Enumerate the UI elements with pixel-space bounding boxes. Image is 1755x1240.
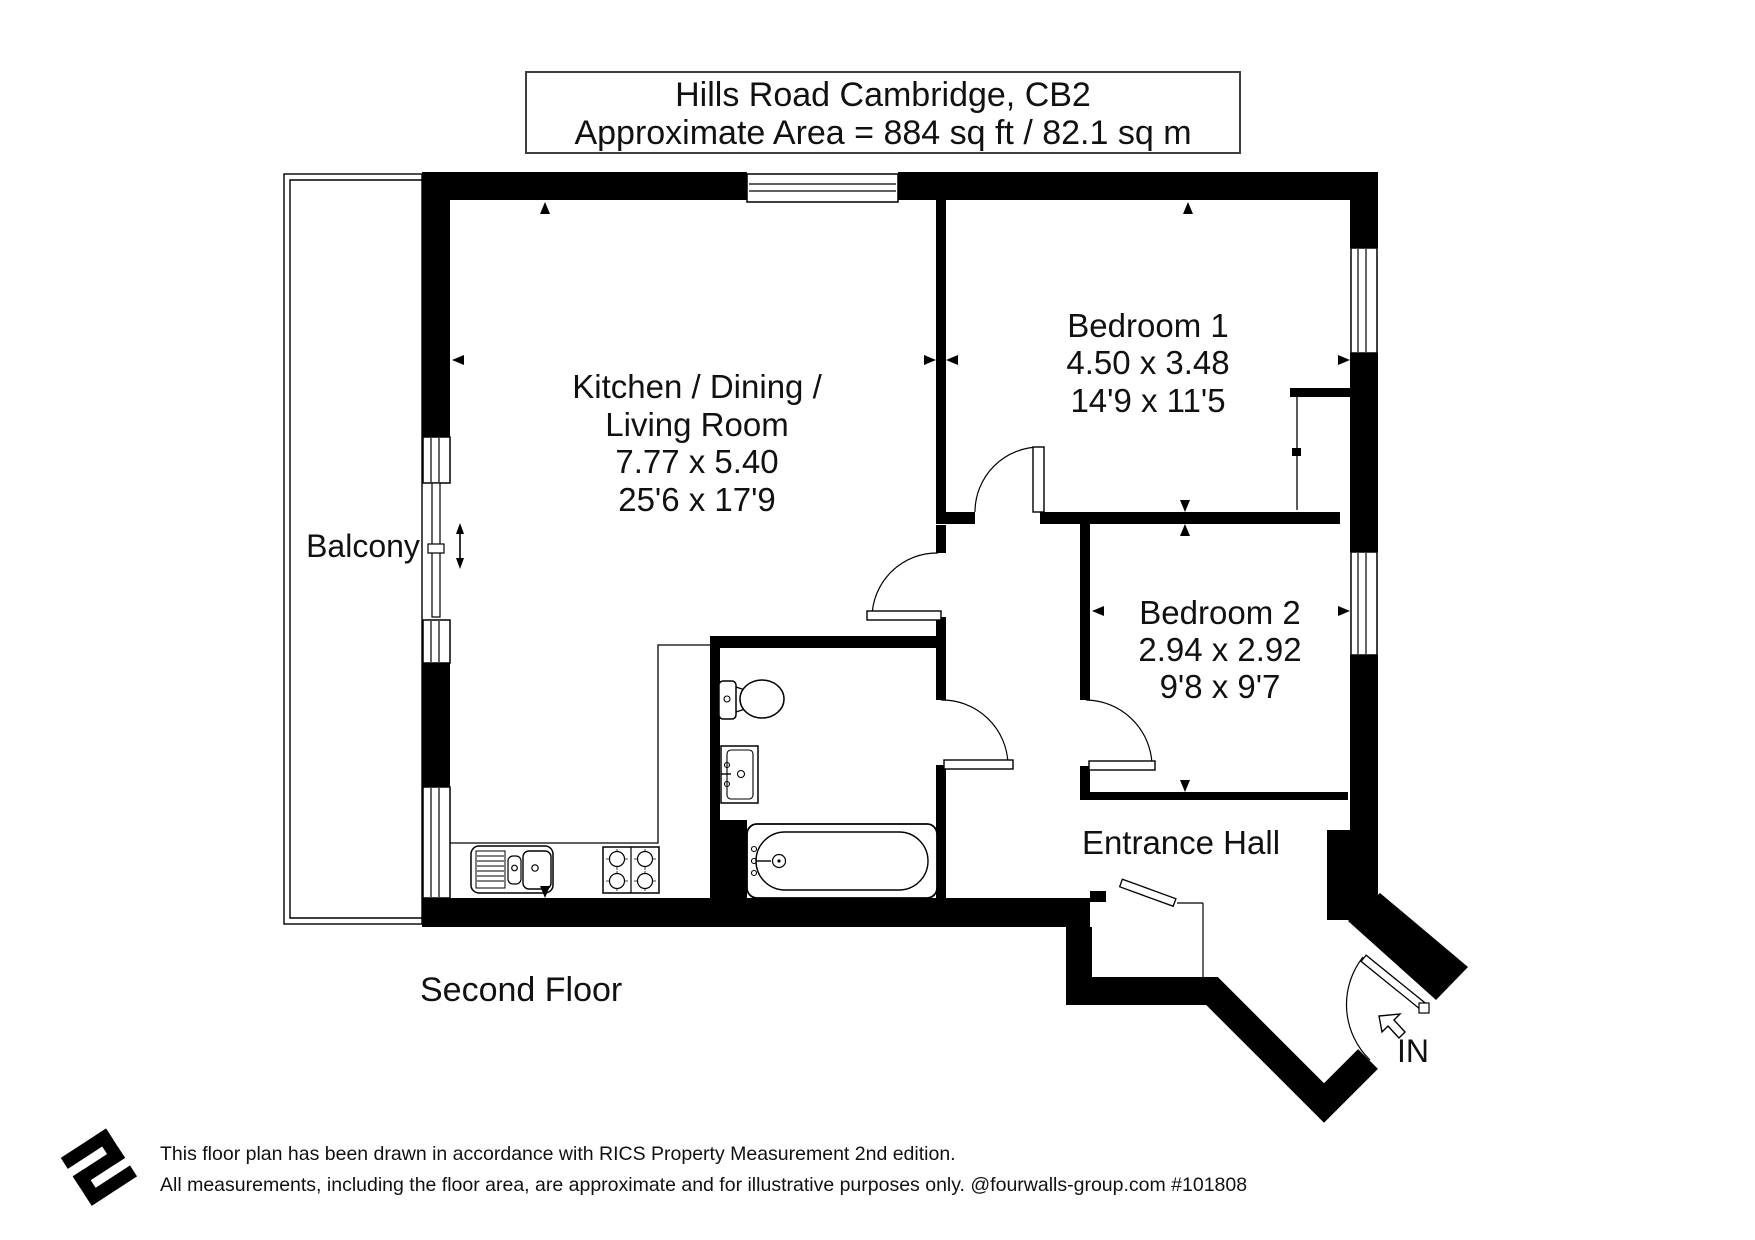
title-area: Approximate Area = 884 sq ft / 82.1 sq m bbox=[574, 114, 1191, 152]
wall-segment bbox=[710, 820, 747, 898]
sliding-balcony-door bbox=[428, 483, 444, 617]
hob-burner bbox=[638, 852, 653, 867]
window-frame bbox=[747, 174, 898, 202]
measure-arrow-right bbox=[1338, 606, 1350, 616]
bedroom2-dims-imperial: 9'8 x 9'7 bbox=[1160, 668, 1281, 705]
windows bbox=[423, 174, 1377, 898]
measure-arrow-down bbox=[1180, 780, 1190, 792]
living-room-label-line1: Kitchen / Dining / bbox=[572, 368, 822, 405]
floor-plan-page: Hills Road Cambridge, CB2 Approximate Ar… bbox=[0, 0, 1755, 1240]
title-address: Hills Road Cambridge, CB2 bbox=[675, 76, 1091, 114]
wall-segment bbox=[1350, 200, 1378, 248]
wall-segment-closet bbox=[1290, 388, 1352, 397]
measure-arrow-right bbox=[1338, 355, 1350, 365]
door-leaf bbox=[867, 611, 941, 620]
footer-disclaimer-line2: All measurements, including the floor ar… bbox=[160, 1174, 1247, 1196]
bedroom2-label: Bedroom 2 bbox=[1139, 594, 1300, 631]
door-bedroom2 bbox=[1086, 700, 1155, 770]
sliding-direction-arrow bbox=[456, 523, 464, 569]
toilet bbox=[719, 680, 784, 719]
wall-segment bbox=[422, 172, 747, 200]
door-swing-arc bbox=[975, 447, 1040, 512]
door-leaf bbox=[1033, 447, 1044, 512]
window-left-1 bbox=[423, 437, 450, 483]
door-cupboard bbox=[1120, 879, 1203, 978]
door-bathroom bbox=[941, 700, 1013, 769]
door-swing-arc bbox=[1347, 957, 1370, 1060]
footer-disclaimer-line1: This floor plan has been drawn in accord… bbox=[160, 1143, 956, 1165]
hob-burner bbox=[610, 874, 625, 889]
wall-segment-bathroom-top bbox=[710, 636, 938, 648]
title-box: Hills Road Cambridge, CB2 Approximate Ar… bbox=[526, 72, 1240, 153]
wall-segment bbox=[1082, 792, 1348, 800]
sink-bowl-small bbox=[508, 856, 521, 884]
window-frame bbox=[1351, 248, 1377, 353]
wall-segment bbox=[936, 525, 946, 553]
balcony-label: Balcony bbox=[306, 528, 420, 564]
sink-drainer bbox=[476, 851, 505, 888]
measure-arrow-left bbox=[946, 355, 958, 365]
bathtub bbox=[747, 824, 937, 898]
wall-segment bbox=[936, 617, 946, 700]
wall-segment bbox=[936, 512, 975, 524]
door-bedroom1 bbox=[975, 447, 1044, 512]
wall-segment-central bbox=[936, 200, 946, 512]
living-room-dims-metric: 7.77 x 5.40 bbox=[615, 443, 778, 480]
measure-arrow-up bbox=[1180, 524, 1190, 536]
sliding-door-panel bbox=[432, 550, 440, 617]
floor-name-label: Second Floor bbox=[420, 971, 622, 1009]
measure-arrow-up bbox=[540, 202, 550, 214]
sliding-door-coupler bbox=[428, 544, 444, 553]
arrow-head-up bbox=[456, 523, 464, 534]
bedroom1-dims-metric: 4.50 x 3.48 bbox=[1066, 344, 1229, 381]
window-frame bbox=[423, 437, 450, 483]
bedroom2-dims-metric: 2.94 x 2.92 bbox=[1138, 631, 1301, 668]
wall-segment-closet-tick bbox=[1292, 448, 1301, 456]
hob-burner bbox=[610, 852, 625, 867]
bath-inner bbox=[756, 832, 928, 890]
entrance-hall-label: Entrance Hall bbox=[1082, 824, 1280, 861]
door-swing-arc bbox=[1086, 700, 1152, 764]
hob-burner bbox=[638, 874, 653, 889]
doors bbox=[867, 447, 1429, 1060]
measure-arrow-up bbox=[1183, 202, 1193, 214]
bath-plug-dot bbox=[777, 859, 780, 862]
door-living-room bbox=[867, 553, 941, 620]
bedroom1-label: Bedroom 1 bbox=[1067, 307, 1228, 344]
wash-basin bbox=[721, 746, 758, 803]
living-room-dims-imperial: 25'6 x 17'9 bbox=[618, 481, 776, 518]
kitchen-sink bbox=[471, 846, 553, 893]
measure-arrow-left bbox=[452, 355, 464, 365]
door-hinge bbox=[1419, 1003, 1429, 1013]
wall-segment bbox=[422, 898, 1090, 927]
fourwalls-logo bbox=[61, 1129, 137, 1206]
window-bedroom2 bbox=[1351, 552, 1377, 655]
wall-segment-cupboard-jamb bbox=[1090, 891, 1106, 902]
measure-arrow-left bbox=[1092, 606, 1104, 616]
kitchen-hob bbox=[603, 847, 659, 893]
window-bedroom1 bbox=[1351, 248, 1377, 353]
window-left-2 bbox=[423, 620, 450, 663]
window-left-3 bbox=[423, 787, 450, 898]
kitchen-fixtures bbox=[450, 645, 710, 893]
living-room-label-line2: Living Room bbox=[605, 406, 788, 443]
sliding-door-panel bbox=[432, 483, 440, 546]
wall-segment bbox=[898, 172, 1378, 200]
wall-segment bbox=[422, 663, 450, 787]
window-frame bbox=[423, 620, 450, 663]
wall-segment-bathroom-left bbox=[710, 648, 720, 820]
window-top bbox=[747, 174, 898, 202]
wall-segment-bedroom-divider bbox=[1040, 512, 1340, 524]
wall-segment bbox=[1080, 523, 1090, 700]
wall-segment bbox=[1350, 353, 1378, 552]
entrance-in-label: IN bbox=[1397, 1033, 1429, 1069]
wall-segment-entry-diagonal-upper bbox=[1348, 893, 1468, 1000]
measure-arrow-right bbox=[924, 355, 936, 365]
wall-segment-entry-diagonal-lower bbox=[1066, 991, 1368, 1103]
bedroom1-dims-imperial: 14'9 x 11'5 bbox=[1070, 382, 1225, 419]
wall-segment bbox=[1066, 927, 1092, 979]
window-frame bbox=[423, 787, 450, 898]
toilet-cistern bbox=[719, 681, 736, 719]
kitchen-counter-line bbox=[450, 645, 710, 843]
wall-segment bbox=[422, 200, 450, 437]
measure-arrow-down bbox=[1180, 500, 1190, 512]
toilet-bowl bbox=[740, 680, 784, 718]
arrow-head-down bbox=[456, 558, 464, 569]
door-swing-arc bbox=[872, 553, 938, 617]
walls bbox=[422, 172, 1468, 1103]
room-labels: Kitchen / Dining / Living Room 7.77 x 5.… bbox=[306, 307, 1429, 1069]
door-leaf bbox=[944, 760, 1013, 769]
door-leaf bbox=[1089, 761, 1155, 770]
window-frame bbox=[1351, 552, 1377, 655]
door-swing-arc bbox=[941, 700, 1008, 764]
wall-segment bbox=[1350, 655, 1378, 830]
footer: This floor plan has been drawn in accord… bbox=[61, 1129, 1247, 1206]
door-leaf bbox=[1120, 879, 1176, 906]
floor-plan-canvas: Hills Road Cambridge, CB2 Approximate Ar… bbox=[0, 0, 1755, 1240]
